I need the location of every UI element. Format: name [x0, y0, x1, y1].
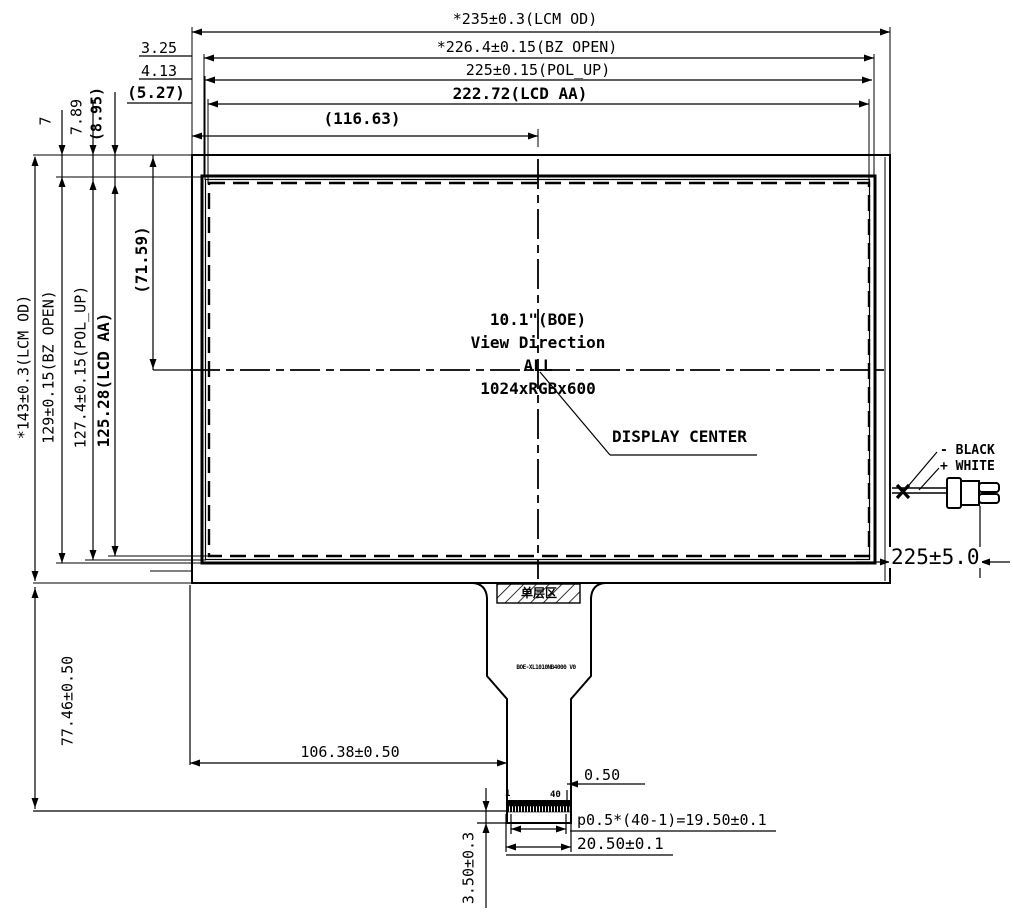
panel-size-label: 10.1"(BOE) [490, 312, 586, 328]
view-direction-label: View Direction [471, 335, 606, 351]
wire-positive-label: + WHITE [940, 460, 995, 473]
dim-offset-aa-top: (8.95) [90, 87, 105, 141]
dim-offset-pol-top: 7.89 [70, 99, 85, 135]
dim-offset-aa-left: (5.27) [127, 85, 185, 101]
dim-tail-width: 20.50±0.1 [577, 836, 664, 852]
dim-height-bz-open: 129±0.15(BZ OPEN) [42, 290, 57, 444]
dim-height-pol-up: 127.4±0.15(POL_UP) [74, 286, 89, 449]
pin-1-label: 1 [505, 790, 510, 799]
dim-tip-height: 3.50±0.3 [462, 832, 477, 904]
dim-offset-bz-left: 3.25 [141, 41, 177, 56]
dim-width-pol-up: 225±0.15(POL_UP) [466, 63, 611, 78]
drawing-linework [0, 0, 1013, 919]
pin-40-label: 40 [550, 791, 561, 800]
dim-pitch-formula: p0.5*(40-1)=19.50±0.1 [577, 813, 767, 828]
fpc-outline [473, 583, 605, 823]
dim-width-lcd-aa: 222.72(LCD AA) [453, 86, 588, 102]
arrowheads [32, 29, 991, 851]
lcm-outline [150, 155, 890, 583]
dim-wire-length: 225±5.0 [889, 547, 982, 568]
fpc-hatch-label: 单层区 [521, 587, 557, 599]
dim-offset-bz-top: 7 [39, 116, 54, 125]
dim-half-width: (116.63) [323, 111, 400, 127]
fpc-part-number: BOE-XL1010NB4000 V0 [516, 665, 575, 671]
wire-connector [947, 478, 999, 508]
dim-half-height: (71.59) [134, 226, 150, 293]
dim-offset-pol-left: 4.13 [141, 64, 177, 79]
backlight-wire [892, 485, 947, 498]
dim-width-lcm-od: *235±0.3(LCM OD) [453, 12, 598, 27]
left-extension-lines [33, 155, 210, 583]
dim-width-bz-open: *226.4±0.15(BZ OPEN) [437, 40, 618, 55]
outline-drawing-canvas: *235±0.3(LCM OD) *226.4±0.15(BZ OPEN) 22… [0, 0, 1013, 919]
wire-negative-label: - BLACK [940, 444, 995, 457]
display-center-callout: DISPLAY CENTER [612, 429, 747, 445]
dim-connector-offset: 106.38±0.50 [300, 745, 399, 760]
resolution-label: 1024xRGBx600 [480, 381, 596, 397]
bottom-dimension-lines [33, 585, 776, 908]
view-direction-value: ALL [524, 358, 553, 374]
dim-tail-length: 77.46±0.50 [61, 656, 76, 746]
wire-label-leaders [904, 452, 939, 491]
dim-pin-edge-margin: 0.50 [584, 768, 620, 783]
dim-height-lcm-od: *143±0.3(LCM OD) [17, 295, 32, 440]
dim-height-lcd-aa: 125.28(LCD AA) [96, 313, 112, 448]
